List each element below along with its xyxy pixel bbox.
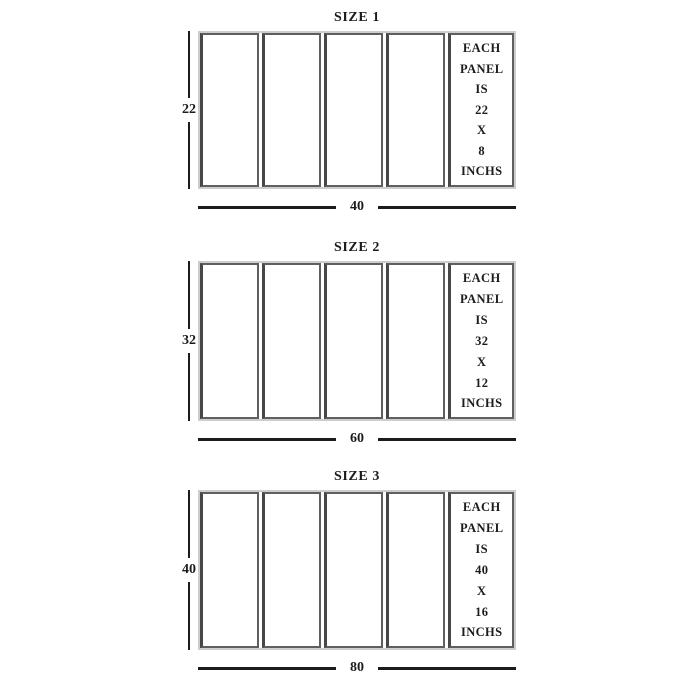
spec-line: 16 bbox=[475, 606, 488, 619]
dimension-line-segment bbox=[188, 353, 190, 421]
dimension-line-segment bbox=[378, 206, 516, 209]
panel bbox=[262, 492, 321, 648]
spec-line: EACH bbox=[463, 501, 501, 514]
spec-line: 40 bbox=[475, 564, 488, 577]
panel bbox=[200, 263, 259, 419]
width-dimension: 80 bbox=[198, 661, 516, 675]
height-dimension: 32 bbox=[182, 261, 196, 421]
dimension-line-segment bbox=[198, 438, 336, 441]
dimension-line-segment bbox=[188, 490, 190, 558]
panel-group: EACH PANEL IS 22 X 8 INCHS bbox=[198, 31, 516, 189]
size-diagram-3: SIZE 3 40 EACH PANEL IS 40 X 16 INCHS 80 bbox=[158, 467, 516, 675]
panel bbox=[324, 33, 383, 187]
panel-spec-text: EACH PANEL IS 32 X 12 INCHS bbox=[448, 263, 514, 419]
panel bbox=[386, 263, 445, 419]
dimension-line-segment bbox=[188, 31, 190, 98]
spec-line: INCHS bbox=[461, 626, 503, 639]
panel-group: EACH PANEL IS 40 X 16 INCHS bbox=[198, 490, 516, 650]
spec-line: EACH bbox=[463, 42, 501, 55]
spec-line: X bbox=[477, 124, 486, 137]
width-value: 60 bbox=[350, 432, 364, 446]
height-value: 40 bbox=[182, 563, 196, 577]
panel-group: EACH PANEL IS 32 X 12 INCHS bbox=[198, 261, 516, 421]
dimension-line-segment bbox=[188, 261, 190, 329]
spec-line: PANEL bbox=[460, 293, 503, 306]
width-value: 80 bbox=[350, 661, 364, 675]
panel bbox=[262, 33, 321, 187]
spec-line: IS bbox=[475, 314, 488, 327]
diagram-title: SIZE 1 bbox=[198, 8, 516, 31]
dimension-line-segment bbox=[198, 667, 336, 670]
panel-spec-text: EACH PANEL IS 22 X 8 INCHS bbox=[448, 33, 514, 187]
height-dimension: 40 bbox=[182, 490, 196, 650]
panel bbox=[200, 33, 259, 187]
panel-spec-text: EACH PANEL IS 40 X 16 INCHS bbox=[448, 492, 514, 648]
width-dimension: 40 bbox=[198, 200, 516, 214]
diagram-title: SIZE 2 bbox=[198, 238, 516, 261]
panel bbox=[386, 492, 445, 648]
spec-line: PANEL bbox=[460, 63, 503, 76]
height-dimension: 22 bbox=[182, 31, 196, 189]
spec-line: 12 bbox=[475, 377, 488, 390]
height-value: 22 bbox=[182, 103, 196, 117]
spec-line: EACH bbox=[463, 272, 501, 285]
spec-line: INCHS bbox=[461, 165, 503, 178]
size-diagram-1: SIZE 1 22 EACH PANEL IS 22 X 8 INCHS 40 bbox=[158, 8, 516, 214]
panel bbox=[324, 263, 383, 419]
panel bbox=[262, 263, 321, 419]
spec-line: X bbox=[477, 585, 486, 598]
panel bbox=[200, 492, 259, 648]
spec-line: X bbox=[477, 356, 486, 369]
dimension-line-segment bbox=[188, 122, 190, 189]
spec-line: IS bbox=[475, 543, 488, 556]
width-value: 40 bbox=[350, 200, 364, 214]
panel bbox=[386, 33, 445, 187]
diagram-title: SIZE 3 bbox=[198, 467, 516, 490]
dimension-line-segment bbox=[198, 206, 336, 209]
spec-line: 8 bbox=[478, 145, 485, 158]
dimension-line-segment bbox=[378, 667, 516, 670]
spec-line: PANEL bbox=[460, 522, 503, 535]
height-value: 32 bbox=[182, 334, 196, 348]
spec-line: INCHS bbox=[461, 397, 503, 410]
dimension-line-segment bbox=[188, 582, 190, 650]
width-dimension: 60 bbox=[198, 432, 516, 446]
spec-line: IS bbox=[475, 83, 488, 96]
size-diagram-2: SIZE 2 32 EACH PANEL IS 32 X 12 INCHS 60 bbox=[158, 238, 516, 446]
spec-line: 22 bbox=[475, 104, 488, 117]
spec-line: 32 bbox=[475, 335, 488, 348]
dimension-line-segment bbox=[378, 438, 516, 441]
panel bbox=[324, 492, 383, 648]
